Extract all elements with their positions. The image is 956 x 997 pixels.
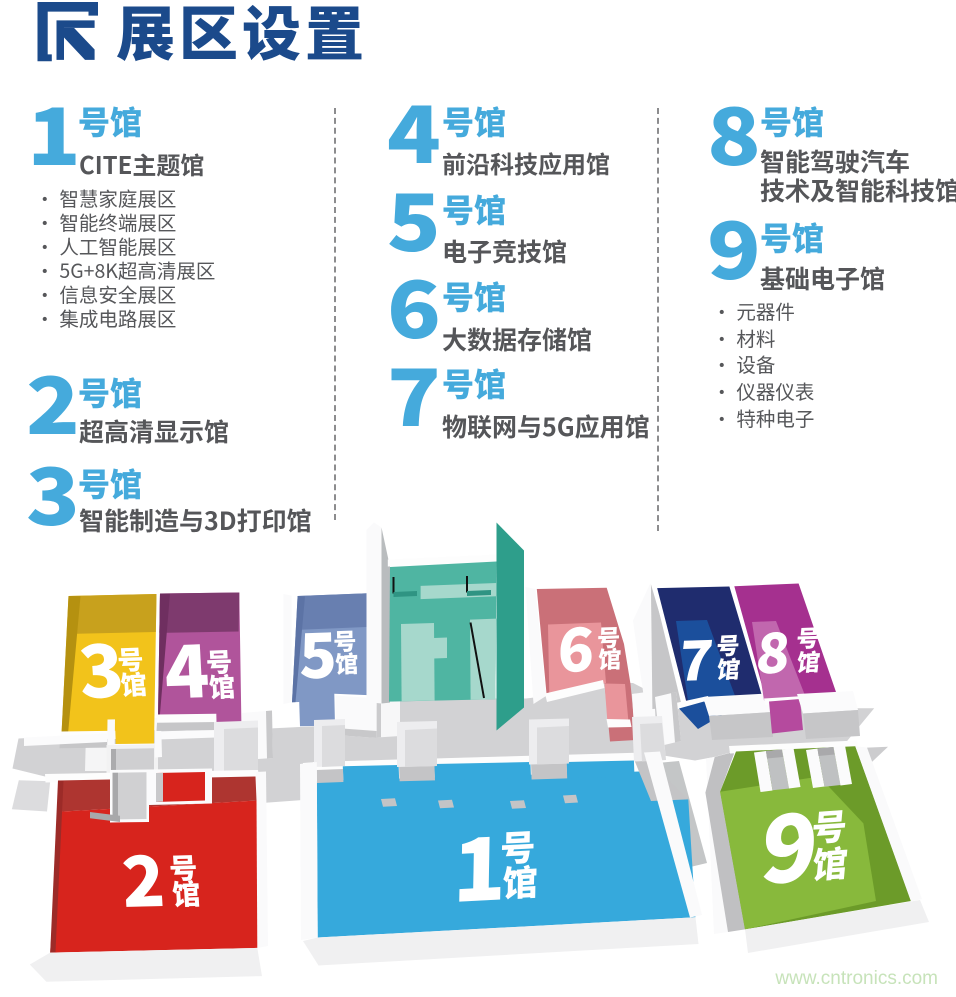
svg-text:馆: 馆 <box>795 643 822 678</box>
svg-text:6: 6 <box>556 602 596 690</box>
svg-text:馆: 馆 <box>171 873 201 914</box>
svg-text:1: 1 <box>452 799 507 928</box>
svg-text:馆: 馆 <box>598 640 622 675</box>
svg-text:2: 2 <box>119 826 168 928</box>
svg-text:馆: 馆 <box>208 667 236 705</box>
svg-text:5: 5 <box>298 605 337 696</box>
svg-text:馆: 馆 <box>335 645 359 680</box>
svg-text:馆: 馆 <box>811 836 850 890</box>
svg-text:馆: 馆 <box>502 855 538 908</box>
svg-text:馆: 馆 <box>119 665 148 703</box>
svg-text:4: 4 <box>162 613 212 720</box>
svg-text:馆: 馆 <box>715 650 742 685</box>
